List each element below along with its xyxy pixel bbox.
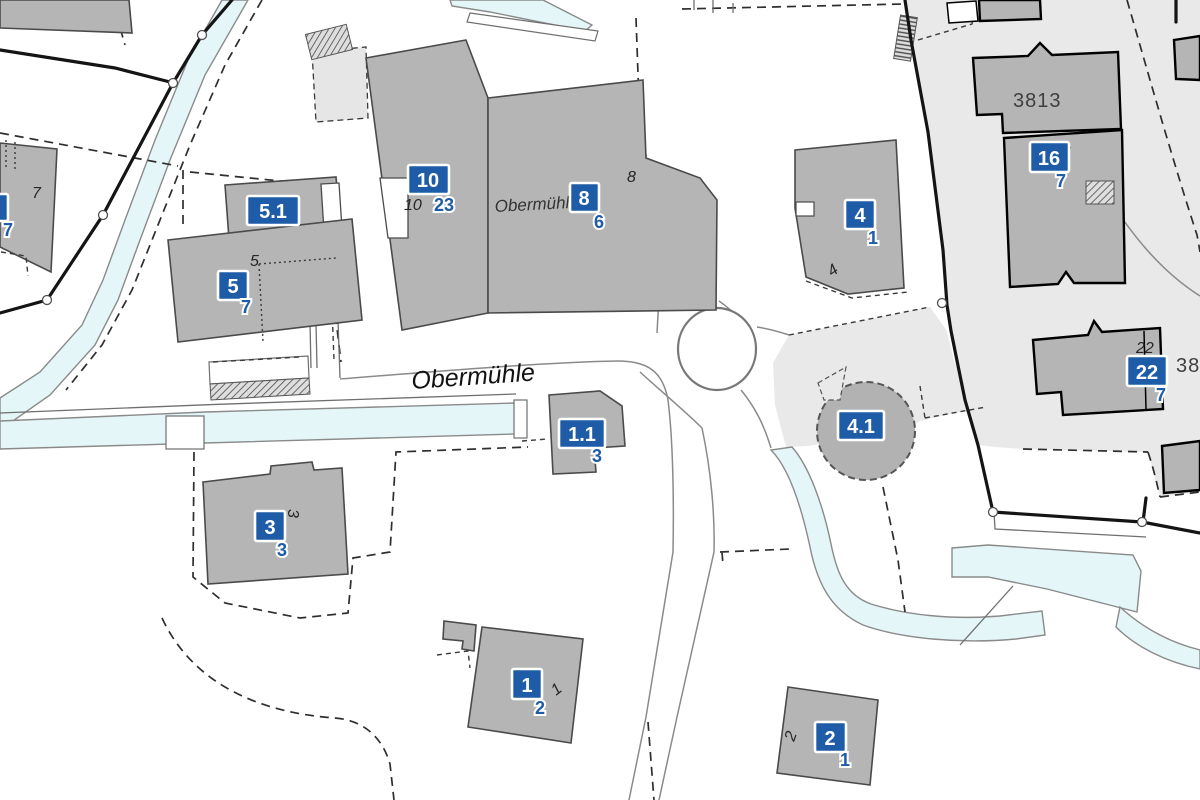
address-label-4: 4	[854, 205, 866, 227]
street-label-obermuehle: Obermühle	[410, 358, 535, 395]
stream-southeast	[771, 447, 1045, 641]
address-label-2: 2	[824, 728, 835, 750]
address-label-5-1: 5.1	[259, 201, 287, 223]
parcel-arc-south	[162, 618, 394, 800]
canal-bridge	[166, 416, 204, 449]
address-sub-10: 23	[434, 195, 454, 215]
survey-point-7	[1138, 518, 1147, 527]
parcel-number-381: 381	[1176, 355, 1200, 377]
dash-south-of-41	[883, 487, 905, 612]
parcel-number-3813: 3813	[1013, 90, 1062, 112]
address-label-1: 1	[521, 675, 532, 697]
dash-road-corner	[720, 549, 790, 565]
map-canvas[interactable]: Obermühle Obermühle 7 5 10 8 4 3 1 2 22 …	[0, 0, 1200, 800]
survey-point-6	[989, 508, 998, 517]
building-right-edge-mid	[1162, 441, 1200, 493]
basin-slit	[1047, 591, 1051, 641]
survey-point-2	[169, 79, 178, 88]
address-sub-22: 7	[1156, 385, 1166, 405]
address-sub-2: 1	[840, 750, 850, 770]
survey-point-4	[43, 296, 52, 305]
dash-at-b11	[522, 439, 548, 441]
canal-end-bar	[514, 400, 527, 438]
outlet-channel	[1116, 607, 1200, 669]
address-sub-5: 7	[241, 297, 251, 317]
house-number-22: 22	[1135, 340, 1154, 357]
building-right-edge-north	[1174, 36, 1200, 80]
top-structure-ticks	[694, 0, 733, 13]
address-sub-4: 1	[868, 228, 878, 248]
address-sub-3: 3	[277, 540, 287, 560]
address-label-10: 10	[417, 170, 439, 192]
house-number-5: 5	[250, 253, 259, 270]
survey-point-3	[99, 211, 108, 220]
address-label-22: 22	[1136, 362, 1158, 384]
address-sub-16: 7	[1056, 171, 1066, 191]
address-sub-7cut: 7	[3, 220, 13, 240]
address-sub-8: 6	[594, 212, 604, 232]
address-sub-1-1: 3	[592, 446, 602, 466]
road-edge-junction-east	[659, 428, 714, 800]
address-label-3: 3	[264, 517, 275, 539]
address-box-4-1[interactable]: 4.1	[838, 411, 884, 440]
house-number-3: 3	[284, 509, 301, 518]
road-edge-east-1	[757, 327, 789, 335]
address-label-4-1: 4.1	[847, 416, 875, 438]
parcel-8-west	[622, 4, 903, 162]
building-5	[168, 219, 362, 342]
survey-point-5	[938, 299, 947, 308]
house-number-8: 8	[627, 169, 636, 186]
open-structure-top	[947, 1, 978, 23]
roundabout	[678, 308, 756, 390]
annex-light-gray	[312, 47, 368, 122]
address-label-5: 5	[227, 276, 238, 298]
building-top-edge	[979, 0, 1041, 21]
road-edge-east-2	[741, 390, 771, 448]
dash-east-of-b1	[648, 722, 654, 800]
house-number-10: 10	[404, 197, 422, 214]
road-edge-junction-west	[618, 361, 673, 800]
boundary-line-west-a	[0, 50, 170, 82]
address-box-5-1[interactable]: 5.1	[247, 196, 299, 225]
dash-annex-b1	[437, 651, 470, 668]
building-4-notch	[796, 202, 814, 216]
building-topleft-corner	[0, 0, 132, 33]
stairs-hatch-building-16	[1086, 181, 1114, 204]
address-label-8: 8	[578, 188, 589, 210]
address-label-16: 16	[1038, 148, 1060, 170]
address-label-1-1: 1.1	[568, 424, 596, 446]
address-sub-1: 2	[535, 698, 545, 718]
survey-point-1	[198, 31, 207, 40]
house-number-7: 7	[32, 185, 42, 202]
building-1-annex	[443, 621, 476, 651]
